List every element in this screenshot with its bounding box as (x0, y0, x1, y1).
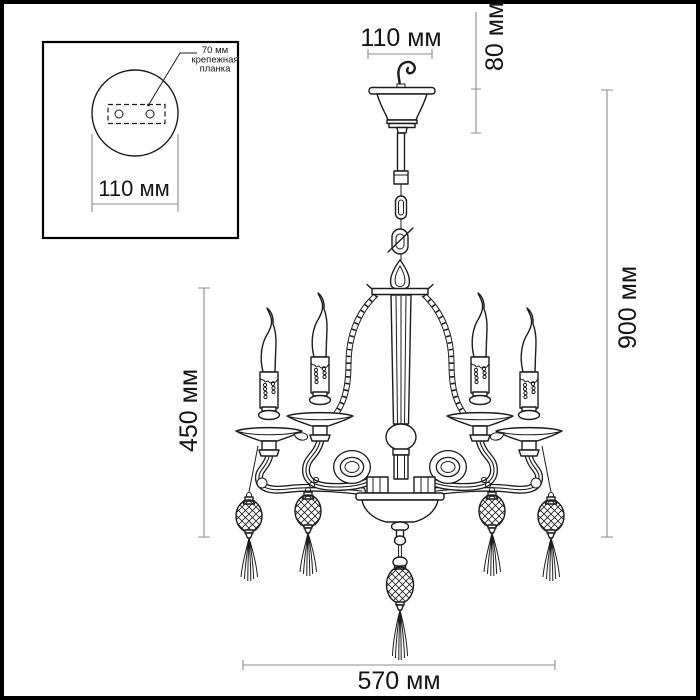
drawing-svg: 70 мм крепежная планка 110 мм (0, 0, 700, 700)
canopy-width-label: 110 мм (360, 24, 441, 52)
canopy-height-label: 80 мм (481, 2, 509, 71)
dimension-canopy-width: 110 мм (360, 24, 441, 59)
overall-width-label: 570 мм (357, 667, 440, 695)
inset-diameter-label: 110 мм (98, 176, 169, 201)
mount-plate-label-line3: планка (200, 64, 232, 75)
overall-height-label: 900 мм (614, 266, 642, 349)
mount-detail-inset: 70 мм крепежная планка 110 мм (43, 42, 239, 238)
leader-dot (147, 104, 150, 107)
chandelier-dimension-drawing: 70 мм крепежная планка 110 мм (0, 0, 700, 700)
chain-link-1 (396, 196, 407, 219)
chain-link-open (392, 229, 408, 254)
body-height-label: 450 мм (175, 369, 203, 452)
column-ball (386, 424, 416, 450)
